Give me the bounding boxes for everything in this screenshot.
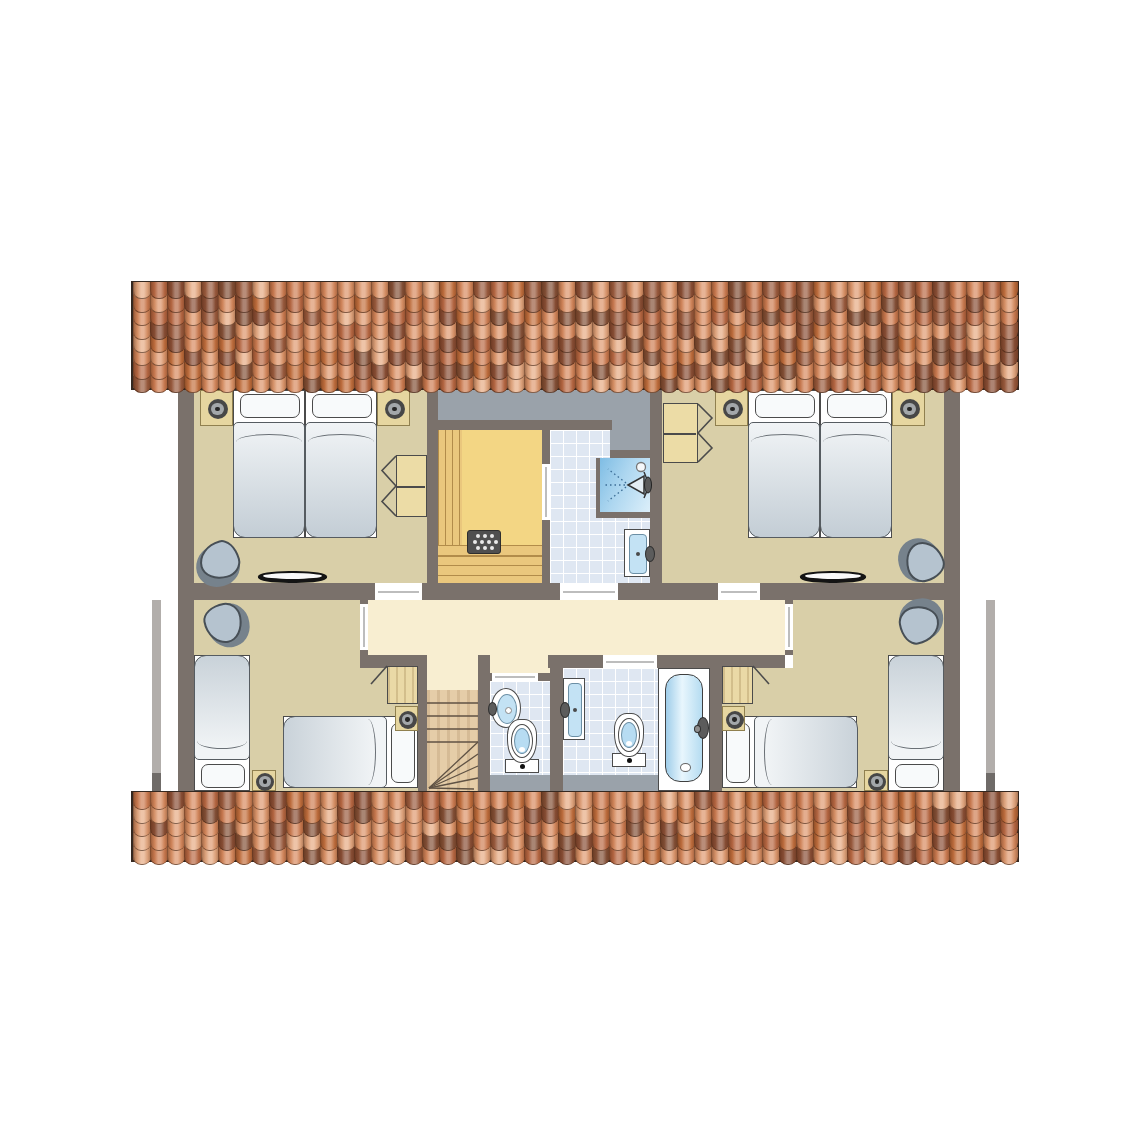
roof-tile	[558, 282, 576, 299]
roof-strip-bottom	[131, 791, 1019, 862]
drain	[636, 552, 640, 556]
roof-tile	[541, 282, 559, 299]
roof-tile	[303, 792, 321, 810]
floor-plan-canvas	[0, 0, 1145, 1145]
roof-tile	[337, 792, 355, 810]
wall	[418, 668, 427, 791]
roof-window-glass	[805, 573, 861, 579]
blanket-line	[360, 719, 376, 785]
roof-tile	[847, 792, 865, 810]
spotlight-icon	[405, 717, 409, 721]
bed-single	[305, 390, 377, 538]
roof-tile	[218, 792, 236, 810]
door-opening-line	[606, 661, 654, 663]
roof-tile	[388, 792, 406, 810]
roof-tile	[150, 792, 168, 810]
roof-tile	[405, 792, 423, 810]
roof-tile	[813, 282, 831, 299]
roof-tile	[337, 282, 355, 299]
door-sauna	[542, 464, 550, 520]
roof-tile	[422, 282, 440, 299]
roof-tile	[745, 792, 763, 810]
pillow	[827, 394, 887, 418]
roof-tile	[422, 792, 440, 810]
roof-tile	[966, 792, 984, 810]
door-opening-line	[378, 591, 419, 593]
roof-tile	[881, 282, 899, 299]
roof-tile	[201, 282, 219, 299]
spotlight-icon	[732, 717, 736, 721]
blanket-line	[764, 719, 780, 785]
drain	[505, 707, 512, 714]
bed-single	[888, 655, 944, 791]
wardrobe-door-swing	[380, 455, 396, 517]
roof-tile	[133, 792, 151, 810]
stair-treads	[427, 690, 478, 791]
hallway-floor	[368, 600, 785, 655]
bed-single	[820, 390, 892, 538]
blanket-line	[236, 434, 302, 450]
heater-stone	[490, 534, 494, 538]
roof-tile	[592, 282, 610, 299]
roof-void-bottom-left	[490, 775, 550, 791]
roof-tile	[864, 282, 882, 299]
roof-tile	[473, 792, 491, 810]
roof-tile	[167, 282, 185, 299]
spotlight-icon	[263, 779, 267, 783]
pillow	[726, 723, 750, 783]
roof-tile	[694, 792, 712, 810]
heater-stone	[487, 540, 491, 544]
roof-tile	[473, 282, 491, 299]
pillow	[201, 764, 245, 788]
roof-tile	[643, 282, 661, 299]
door-wc	[492, 673, 538, 681]
pillow	[312, 394, 372, 418]
roof-tile	[915, 792, 933, 810]
roof-void-top	[438, 390, 650, 420]
roof-tile	[728, 792, 746, 810]
blanket-line	[751, 434, 817, 450]
roof-tile	[847, 282, 865, 299]
eave-foot	[152, 773, 161, 791]
roof-tile	[983, 792, 1001, 810]
roof-tile	[796, 792, 814, 810]
roof-tile	[490, 792, 508, 810]
pillow	[895, 764, 939, 788]
roof-tile	[949, 792, 967, 810]
roof-tile	[252, 792, 270, 810]
washbasin	[563, 678, 585, 740]
roof-tile	[184, 282, 202, 299]
roof-tile	[881, 792, 899, 810]
pillow	[755, 394, 815, 418]
wardrobe-door-swing	[753, 664, 771, 686]
roof-tile	[184, 792, 202, 810]
door-opening-line	[363, 607, 365, 647]
door-shower-room	[560, 583, 618, 600]
spotlight-icon	[875, 779, 879, 783]
wardrobe	[663, 403, 698, 463]
roof-tile	[711, 282, 729, 299]
wardrobe-door-swing	[369, 664, 387, 686]
roof-tile	[626, 792, 644, 810]
hallway-ext-stairs	[427, 655, 478, 690]
roof-tile	[609, 282, 627, 299]
blanket-line	[891, 733, 941, 749]
roof-window-glass	[263, 573, 322, 579]
heater-stone	[483, 546, 487, 550]
wardrobe-shelf-line	[397, 486, 425, 488]
roof-tile	[932, 792, 950, 810]
toilet	[611, 713, 647, 767]
roof-tile	[269, 282, 287, 299]
heater-stone	[480, 540, 484, 544]
sauna-heater	[467, 530, 501, 554]
roof-tile	[320, 792, 338, 810]
wall	[427, 390, 438, 583]
roof-tile	[303, 282, 321, 299]
roof-strip-top	[131, 281, 1019, 390]
shower	[600, 458, 650, 512]
ceiling-spot	[395, 706, 418, 731]
heater-stone	[483, 534, 487, 538]
roof-tile	[150, 282, 168, 299]
toilet-highlight	[626, 741, 632, 746]
roof-tile	[371, 792, 389, 810]
roof-tile	[643, 792, 661, 810]
roof-tile	[864, 792, 882, 810]
door-opening-line	[495, 676, 535, 678]
blanket-line	[308, 434, 374, 450]
sauna-bench	[438, 430, 462, 545]
nightstand-spot	[377, 390, 410, 426]
roof-tile	[762, 282, 780, 299]
door-opening-line	[721, 591, 758, 593]
bed-single	[194, 655, 250, 791]
roof-tile	[456, 792, 474, 810]
roof-tile	[507, 792, 525, 810]
bathtub-drain	[680, 763, 691, 772]
ceiling-spot	[252, 770, 276, 791]
roof-tile	[626, 282, 644, 299]
tap	[560, 702, 570, 718]
washbasin	[624, 529, 650, 577]
roof-void-arm	[610, 420, 650, 450]
shower-head-icon	[600, 458, 650, 512]
roof-tile	[524, 282, 542, 299]
wall	[550, 668, 563, 791]
door-opening-line	[563, 591, 614, 593]
roof-tile	[813, 792, 831, 810]
drain	[573, 708, 577, 712]
roof-tile	[388, 282, 406, 299]
wardrobe	[387, 666, 418, 704]
roof-tile	[218, 282, 236, 299]
roof-void-bottom-right	[563, 775, 658, 791]
bed-single	[233, 390, 305, 538]
roof-tile	[541, 792, 559, 810]
chair	[894, 598, 945, 647]
roof-tile	[354, 282, 372, 299]
wall	[710, 668, 722, 791]
roof-tile	[439, 792, 457, 810]
heater-stone	[476, 546, 480, 550]
heater-stone	[476, 534, 480, 538]
ceiling-spot	[722, 706, 745, 731]
roof-tile	[677, 282, 695, 299]
roof-tile	[286, 792, 304, 810]
roof-tile	[779, 282, 797, 299]
staircase	[427, 690, 478, 791]
door-bathroom	[603, 655, 657, 668]
roof-tile	[745, 282, 763, 299]
cistern-button	[627, 758, 632, 763]
roof-tile	[898, 792, 916, 810]
roof-tile	[796, 282, 814, 299]
roof-tile	[439, 282, 457, 299]
roof-tile	[830, 282, 848, 299]
roof-tile	[575, 792, 593, 810]
nightstand-spot	[715, 390, 748, 426]
eave-line-right	[986, 600, 995, 791]
wall	[596, 512, 650, 518]
roof-tile	[660, 792, 678, 810]
door-bedroom-bottom-right	[785, 604, 793, 650]
roof-window	[800, 571, 866, 583]
roof-tile	[456, 282, 474, 299]
roof-window	[258, 571, 327, 583]
tap	[488, 702, 497, 716]
roof-tile	[575, 282, 593, 299]
roof-tile	[915, 282, 933, 299]
roof-tile	[286, 282, 304, 299]
door-bedroom-top-left	[375, 583, 422, 600]
blanket-line	[197, 733, 247, 749]
roof-tile	[728, 282, 746, 299]
blanket-line	[823, 434, 889, 450]
roof-tile	[762, 792, 780, 810]
roof-tile	[966, 282, 984, 299]
cistern-button	[520, 764, 525, 769]
wardrobe	[396, 455, 427, 517]
roof-tile	[830, 792, 848, 810]
roof-tile	[898, 282, 916, 299]
roof-tile	[354, 792, 372, 810]
roof-tile	[677, 792, 695, 810]
roof-tile	[167, 792, 185, 810]
nightstand-spot	[892, 390, 925, 426]
tap	[645, 546, 655, 562]
roof-tile	[949, 282, 967, 299]
wardrobe-door-swing	[698, 403, 714, 463]
wardrobe-shelf-line	[664, 433, 696, 435]
roof-tile	[711, 792, 729, 810]
roof-tile	[320, 282, 338, 299]
wardrobe	[722, 666, 753, 704]
roof-tile	[609, 792, 627, 810]
bed-single	[748, 390, 820, 538]
roof-tile	[252, 282, 270, 299]
bathtub-tap-knob	[694, 725, 701, 733]
toilet	[504, 719, 540, 773]
eave-line-left	[152, 600, 161, 791]
roof-tile	[201, 792, 219, 810]
roof-tile	[1000, 792, 1018, 810]
heater-stone	[473, 540, 477, 544]
roof-tile	[371, 282, 389, 299]
door-opening-line	[545, 467, 547, 516]
roof-tile	[660, 282, 678, 299]
door-bedroom-bottom-left	[360, 604, 368, 650]
roof-tile	[269, 792, 287, 810]
pillow	[240, 394, 300, 418]
chair	[200, 598, 249, 649]
heater-stone	[494, 540, 498, 544]
roof-tile	[405, 282, 423, 299]
roof-tile	[490, 282, 508, 299]
pillow	[391, 723, 415, 783]
bathtub	[665, 674, 703, 782]
wall	[438, 420, 612, 430]
roof-tile	[235, 792, 253, 810]
roof-tile	[558, 792, 576, 810]
wall	[478, 655, 490, 791]
roof-tile	[932, 282, 950, 299]
roof-tile	[133, 282, 151, 299]
roof-tile	[1000, 282, 1018, 299]
toilet-highlight	[519, 747, 525, 752]
roof-tile	[779, 792, 797, 810]
roof-tile	[983, 282, 1001, 299]
door-bedroom-top-right	[718, 583, 760, 600]
ceiling-spot	[864, 770, 888, 791]
nightstand-spot	[200, 390, 233, 426]
hallway-ext-wc	[490, 655, 550, 673]
roof-tile	[235, 282, 253, 299]
wall	[610, 450, 650, 458]
heater-stone	[490, 546, 494, 550]
roof-tile	[694, 282, 712, 299]
roof-tile	[592, 792, 610, 810]
door-opening-line	[788, 607, 790, 647]
roof-tile	[507, 282, 525, 299]
eave-foot	[986, 773, 995, 791]
roof-tile	[524, 792, 542, 810]
